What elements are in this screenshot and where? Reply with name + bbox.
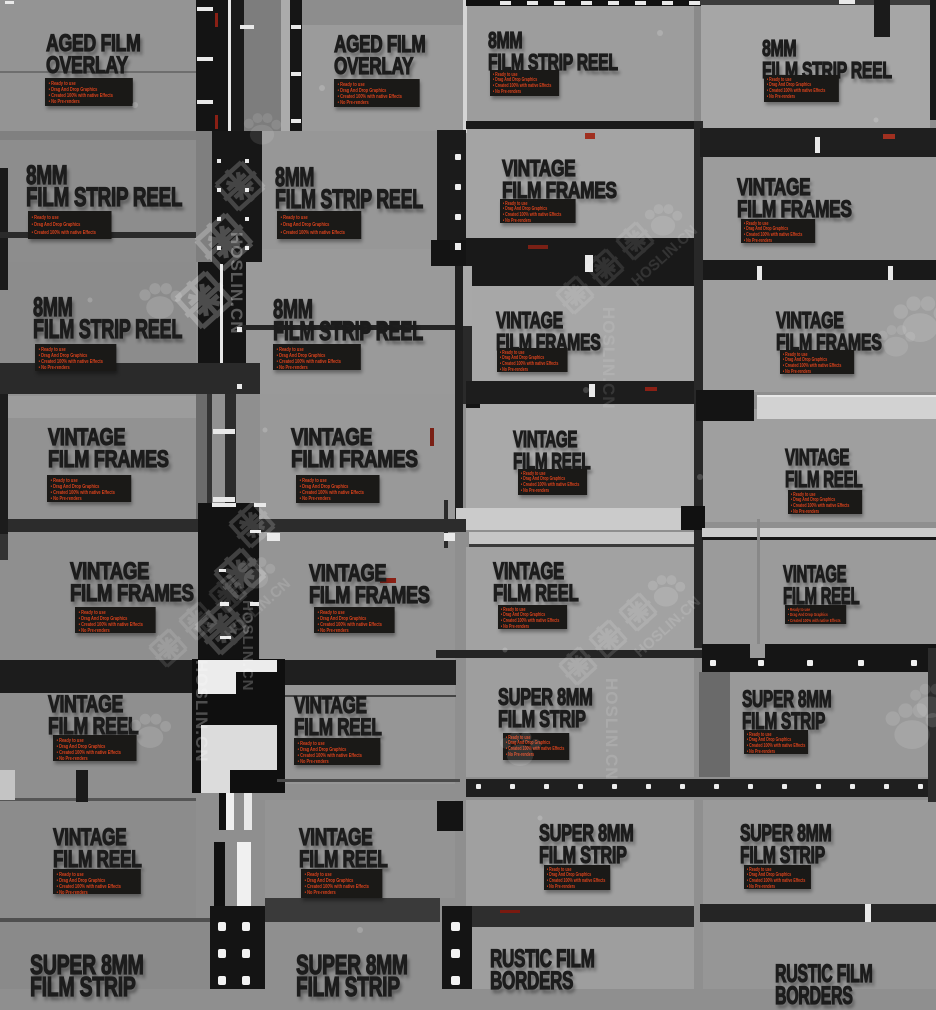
svg-text:HOSLIN.CN: HOSLIN.CN xyxy=(599,307,618,410)
svg-text:HOSLIN.CN: HOSLIN.CN xyxy=(239,600,256,692)
svg-text:HOSLIN.CN: HOSLIN.CN xyxy=(227,232,246,335)
svg-text:HOSLIN.CN: HOSLIN.CN xyxy=(602,678,621,781)
svg-text:HOSLIN.CN: HOSLIN.CN xyxy=(192,660,211,763)
